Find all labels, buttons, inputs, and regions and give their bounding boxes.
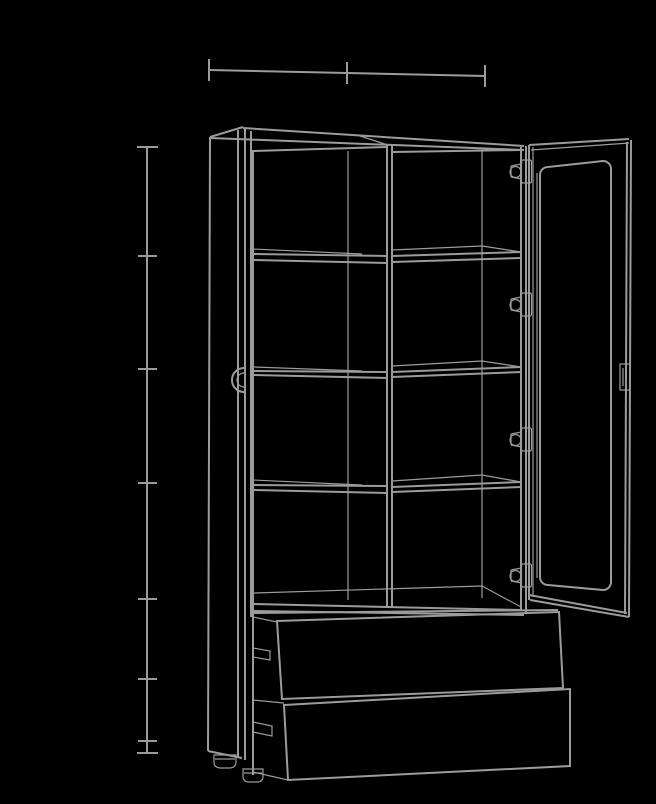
drawer-side-rail-lower xyxy=(253,722,272,736)
cabinet-technical-drawing xyxy=(0,0,656,804)
center-divider xyxy=(348,145,392,607)
ceiling-edge-right xyxy=(393,150,520,152)
cabinet-carcass xyxy=(208,127,526,775)
drawer-divider-edge xyxy=(253,700,284,703)
door-glass-frame xyxy=(540,161,611,590)
drawer-bottom-front xyxy=(284,689,570,780)
right-wall xyxy=(482,146,526,612)
ceiling-edge-left xyxy=(253,147,387,151)
drawer-side-rail-upper xyxy=(253,648,270,660)
right-door-open xyxy=(529,139,631,617)
drawer-top-front xyxy=(277,612,563,699)
top-width-dimension-line xyxy=(209,59,485,87)
left-side-outer-edge xyxy=(208,137,210,751)
left-height-dimension-line xyxy=(137,147,158,753)
drawing-canvas xyxy=(0,0,656,804)
left-door-closed xyxy=(232,129,245,760)
drawer-section xyxy=(253,610,570,780)
